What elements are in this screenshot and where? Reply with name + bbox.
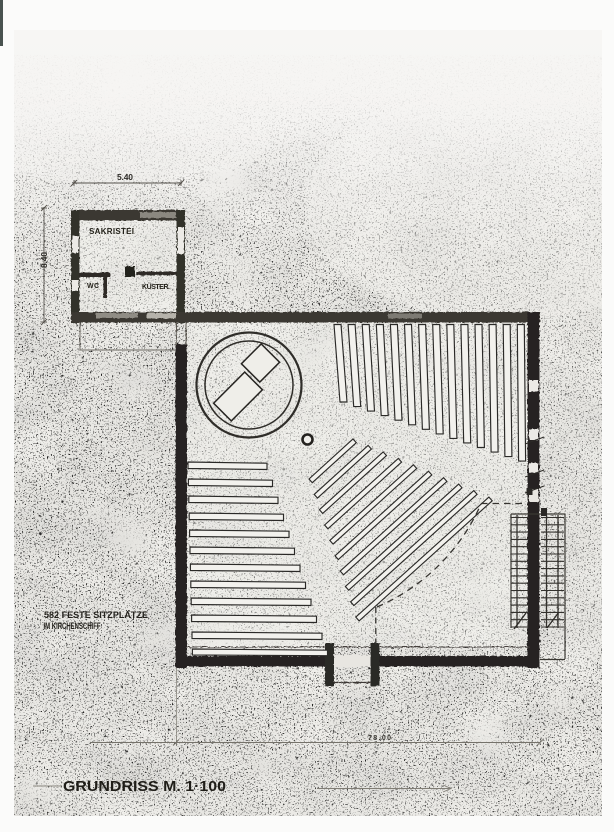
svg-text:5.40: 5.40 — [117, 172, 133, 182]
svg-text:GRUNDRISS M. 1·100: GRUNDRISS M. 1·100 — [63, 778, 226, 795]
svg-text:IM KIRCHENSCHIFF: IM KIRCHENSCHIFF — [44, 621, 101, 632]
svg-text:WC: WC — [87, 283, 99, 290]
svg-text:8.40: 8.40 — [39, 252, 49, 268]
svg-text:78.00: 78.00 — [368, 735, 391, 742]
svg-text:582 FESTE SITZPLÄTZE: 582 FESTE SITZPLÄTZE — [44, 610, 148, 621]
svg-text:KÜSTER.: KÜSTER. — [142, 282, 170, 291]
svg-text:SAKRISTEI: SAKRISTEI — [89, 227, 135, 236]
